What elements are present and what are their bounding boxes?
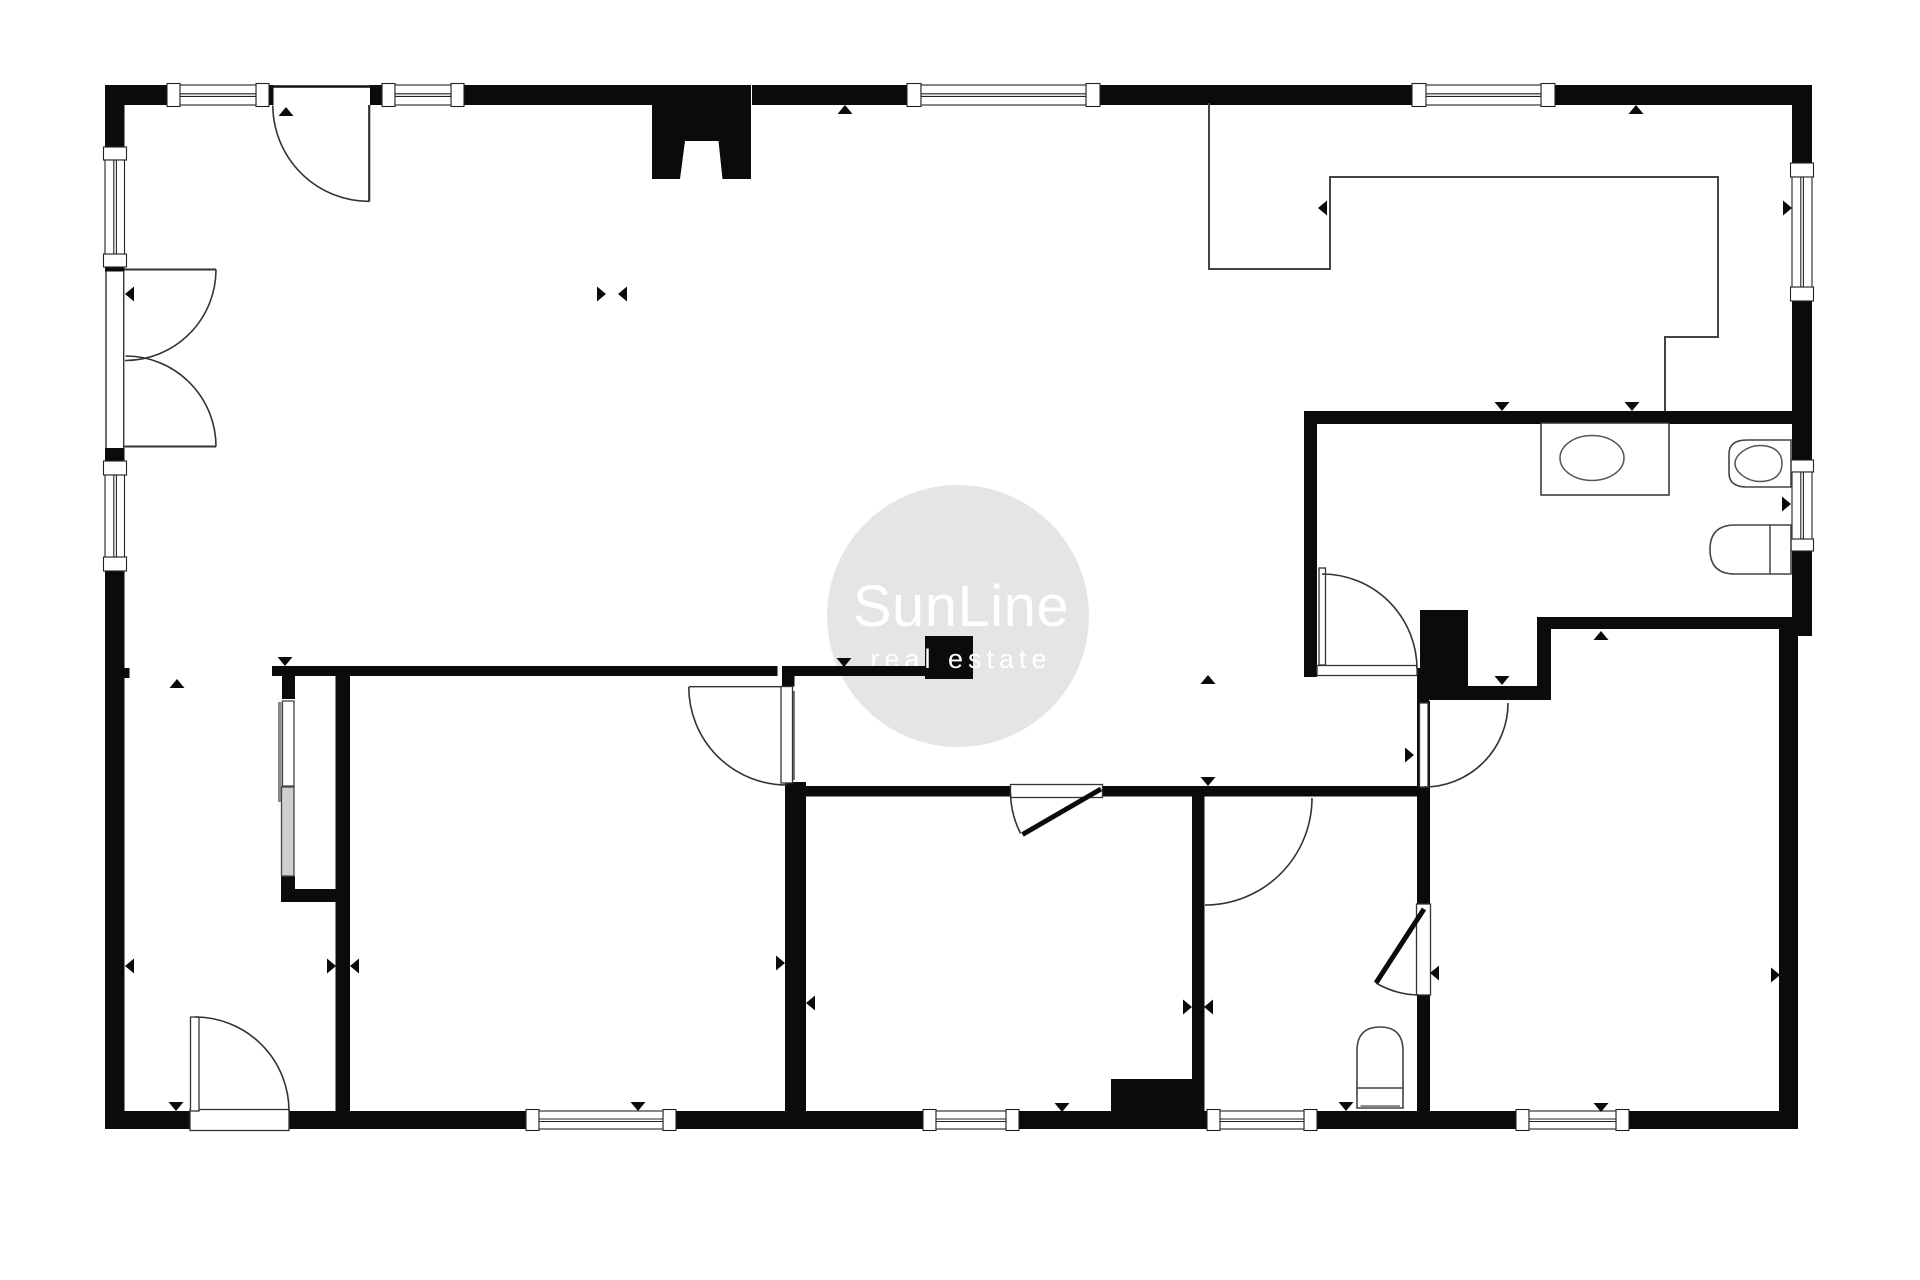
svg-text:SunLine: SunLine [853, 574, 1069, 639]
